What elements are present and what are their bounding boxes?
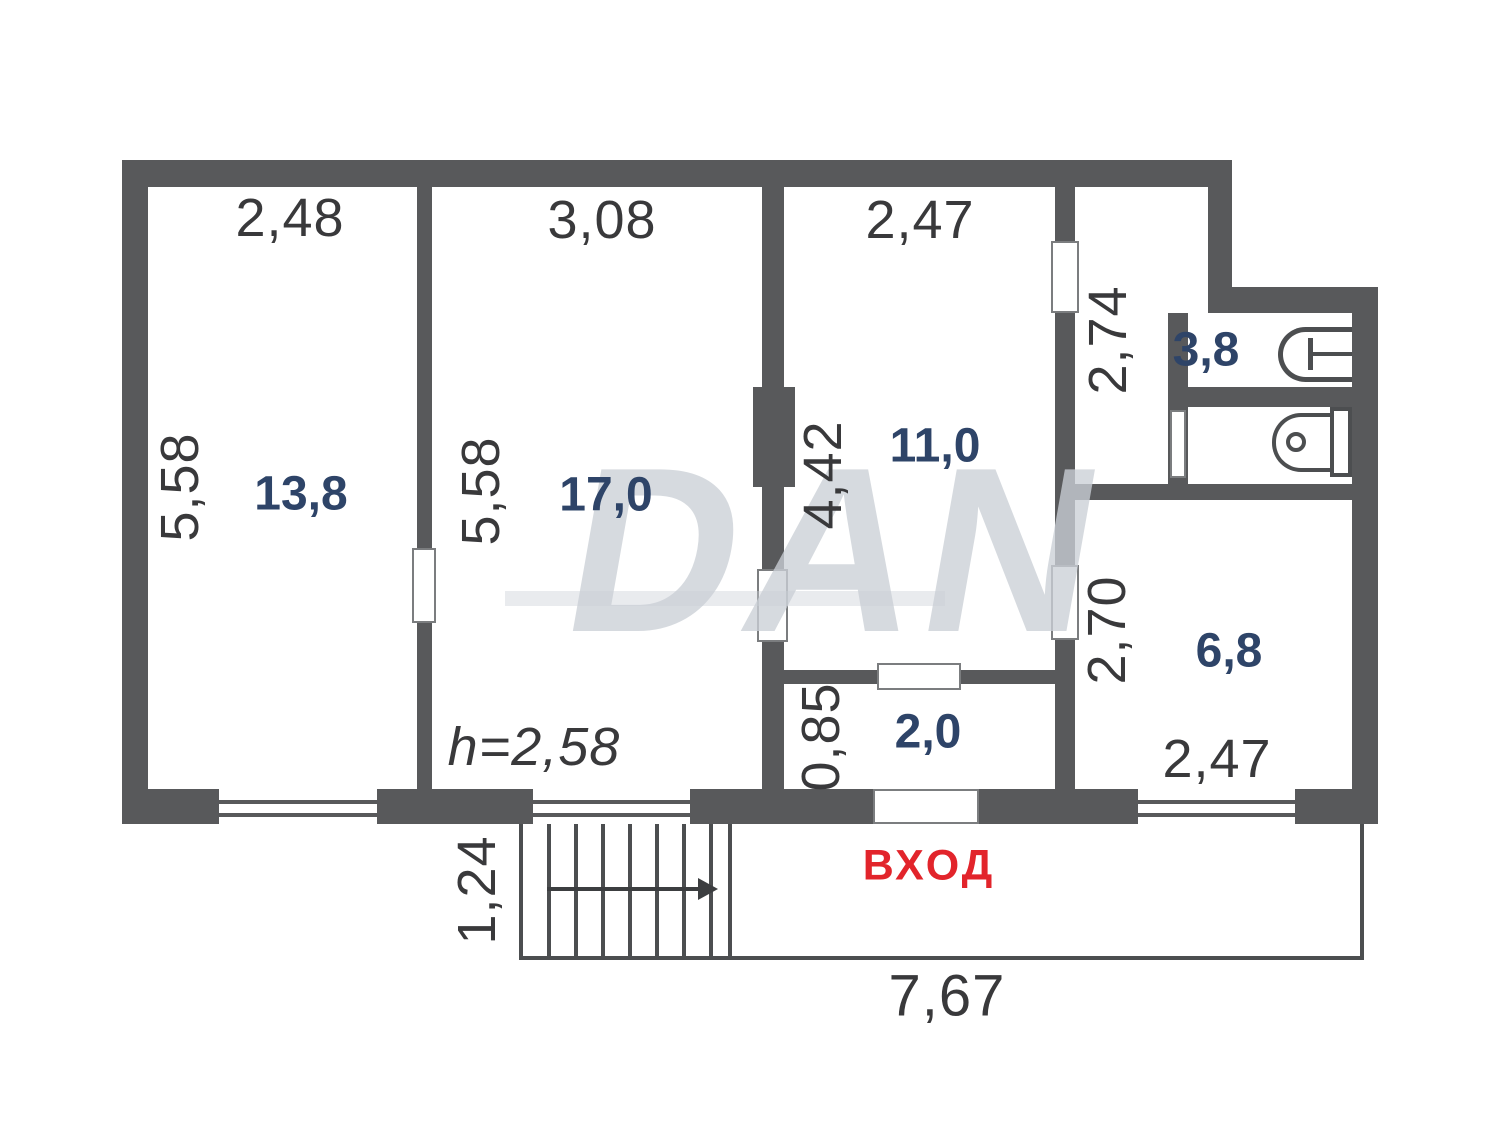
dim-ceiling-height: h=2,58: [448, 716, 621, 778]
dim-width-11-0: 2,47: [865, 189, 974, 251]
door-opening-11-corridor: [1051, 241, 1079, 313]
wall-divider-13-17: [417, 187, 432, 789]
dim-porch-height: 1,24: [446, 835, 508, 944]
dim-porch-width: 7,67: [889, 963, 1006, 1030]
toilet-icon: [1286, 432, 1306, 452]
floor-plan: DAN 2,48 3,08 2,47 5,58 5,58 4,42 2,74 2…: [0, 0, 1500, 1125]
stair-step: [682, 824, 686, 960]
dim-height-6-8: 2,70: [1076, 575, 1138, 684]
wall-left: [122, 160, 148, 824]
dim-width-13-8: 2,48: [235, 187, 344, 249]
door-opening-wc: [1170, 410, 1186, 478]
window-room-17-0: [533, 789, 690, 824]
stairs-edge: [728, 824, 732, 960]
door-opening-entrance: [873, 789, 979, 824]
dim-height-17-0: 5,58: [450, 436, 512, 545]
stairs-direction-arrow: [547, 887, 700, 891]
stair-step: [655, 824, 659, 960]
wall-extension-right: [1352, 287, 1378, 824]
stairs-direction-arrowhead-icon: [698, 878, 718, 900]
window-room-13-8: [219, 789, 377, 824]
dim-width-17-0: 3,08: [547, 189, 656, 251]
area-label-13-8: 13,8: [254, 467, 347, 522]
faucet-icon: [1312, 352, 1352, 356]
stair-step: [628, 824, 632, 960]
stair-step: [574, 824, 578, 960]
dim-height-corridor: 2,74: [1077, 285, 1139, 394]
stair-step: [601, 824, 605, 960]
area-label-3-8: 3,8: [1173, 323, 1240, 378]
toilet-cistern-icon: [1330, 407, 1352, 477]
faucet-icon: [1308, 338, 1313, 370]
door-opening-13-17: [412, 548, 436, 623]
dim-height-hall: 0,85: [790, 682, 852, 791]
watermark-subtext: [505, 591, 945, 606]
entrance-label: ВХОД: [863, 842, 996, 891]
wall-bath-divider: [1168, 387, 1352, 407]
area-label-2-0: 2,0: [895, 705, 962, 760]
window-room-6-8: [1138, 789, 1295, 824]
area-label-6-8: 6,8: [1196, 624, 1263, 679]
dim-width-6-8: 2,47: [1162, 728, 1271, 790]
area-label-11-0: 11,0: [890, 419, 981, 474]
dim-height-13-8: 5,58: [149, 432, 211, 541]
stair-step: [547, 824, 551, 960]
area-label-17-0: 17,0: [559, 468, 652, 523]
dim-height-11-0: 4,42: [792, 420, 854, 529]
wall-top: [122, 160, 1232, 187]
